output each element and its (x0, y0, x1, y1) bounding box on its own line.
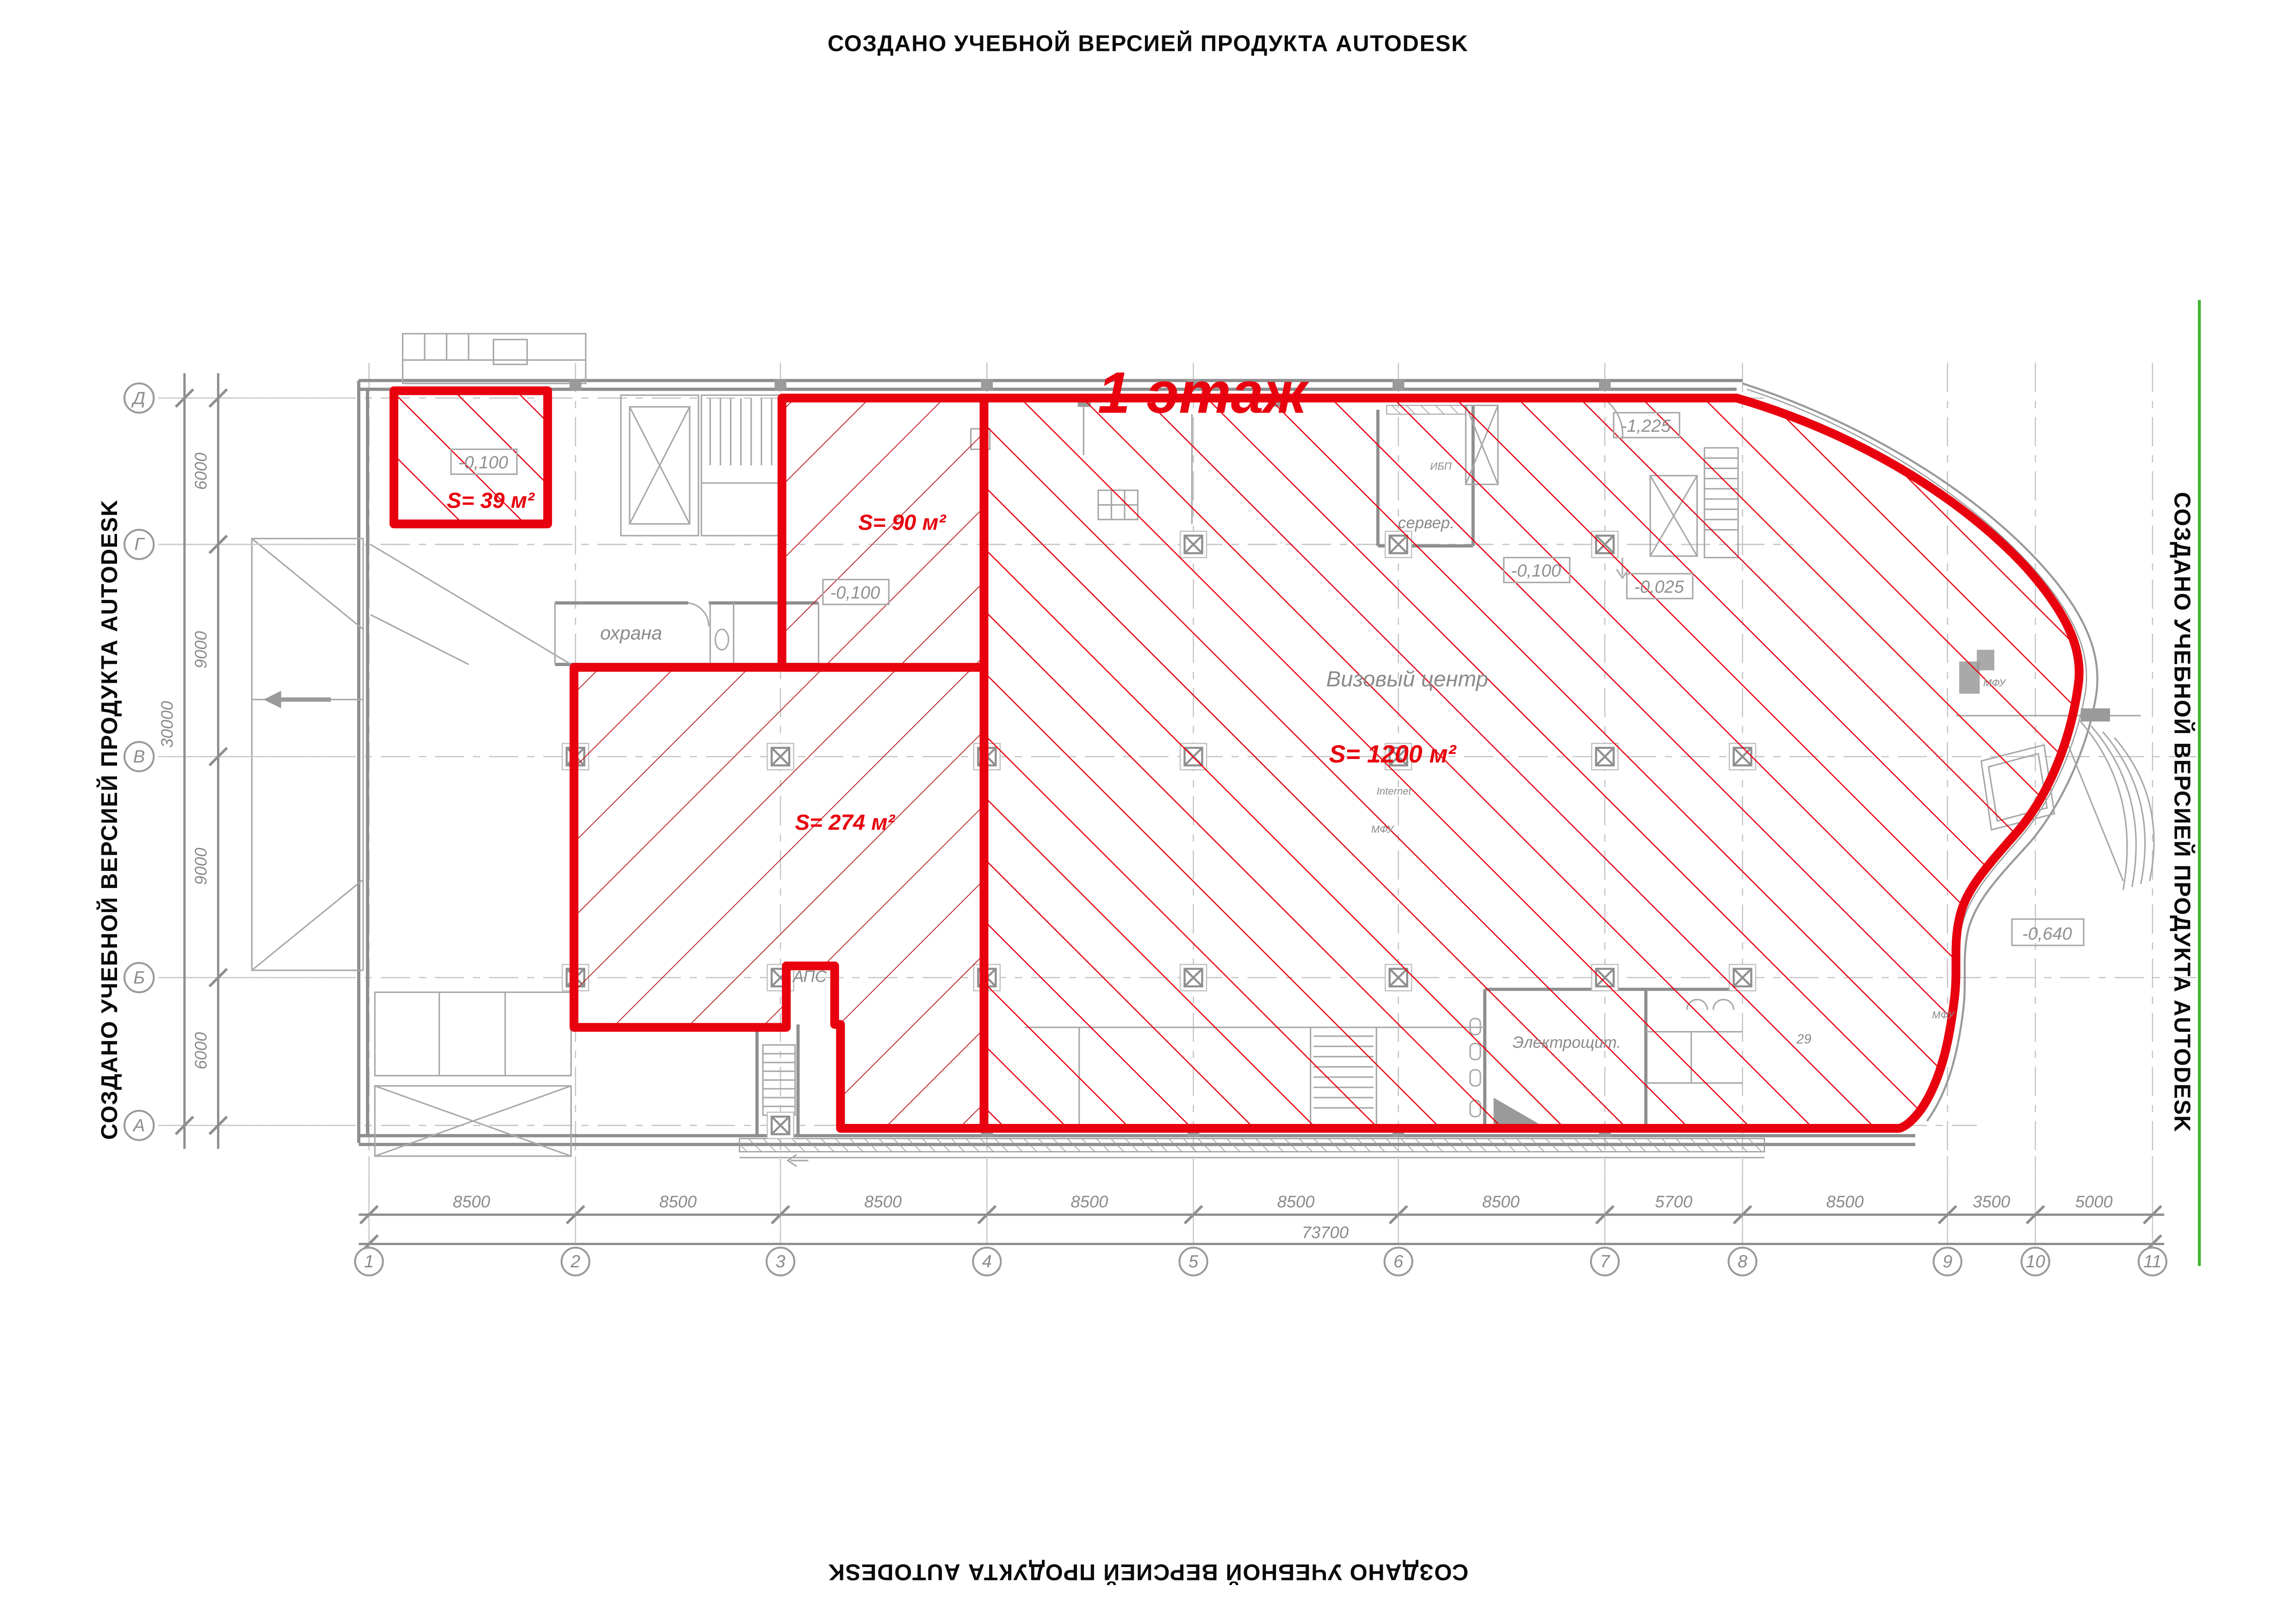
label-mfu-1: МФУ (1371, 823, 1394, 835)
dim-8500-2: 8500 (659, 1192, 697, 1211)
dim-6000-bottom: 6000 (191, 1032, 210, 1069)
room-label-ibp: ИБП (1430, 461, 1452, 472)
room-label-electro: Электрощит. (1512, 1034, 1621, 1052)
axis-row-v: В (133, 747, 145, 767)
axis-col-3: 3 (775, 1252, 785, 1271)
zone-274 (574, 667, 984, 1129)
dim-8500-7: 8500 (1826, 1192, 1864, 1211)
watermark-top: СОЗДАНО УЧЕБНОЙ ВЕРСИЕЙ ПРОДУКТА AUTODES… (828, 30, 1468, 56)
red-zones (394, 391, 2079, 1129)
room-label-server: сервер. (1398, 514, 1454, 532)
axis-row-g: Г (134, 535, 145, 555)
page-title: 1 этаж (1098, 359, 1309, 425)
toilet-icon (715, 629, 728, 650)
dim-6000-top: 6000 (191, 452, 210, 490)
axis-col-2: 2 (570, 1252, 580, 1271)
dim-8500-6: 8500 (1482, 1192, 1520, 1211)
room-number-29: 29 (1796, 1032, 1812, 1047)
dim-8500-4: 8500 (1071, 1192, 1108, 1211)
dim-8500-1: 8500 (453, 1192, 490, 1211)
label-mfu-3: МФУ (1983, 677, 2006, 689)
label-mfu-2: МФУ (1932, 1009, 1955, 1021)
ramp-arrow-icon (788, 1154, 808, 1166)
axis-bubbles-left: Д Г В Б А (124, 383, 154, 1140)
entry-arrow-head-icon (264, 691, 281, 708)
dim-5000: 5000 (2075, 1192, 2113, 1211)
dim-total-30000: 30000 (157, 701, 176, 748)
dim-5700: 5700 (1655, 1192, 1692, 1211)
porch-strip (739, 1139, 1764, 1158)
area-label-274: S= 274 м² (795, 810, 895, 835)
stair-top-left (701, 395, 779, 536)
axis-row-d: Д (131, 389, 145, 408)
stair-block-top-left (402, 333, 586, 383)
elevator-top-left (621, 395, 699, 536)
dimensions-bottom: 8500 8500 8500 8500 8500 8500 5700 8500 … (359, 1156, 2164, 1271)
dimensions-left: 6000 9000 9000 6000 30000 (157, 373, 351, 1149)
axis-col-6: 6 (1393, 1252, 1404, 1271)
floor-plan-sheet: 8500 8500 8500 8500 8500 8500 5700 8500 … (0, 0, 2296, 1623)
elevation-stair: -0,025 (1634, 577, 1684, 597)
entry-canopy-left (252, 538, 571, 970)
room-label-aps: АПС (792, 968, 827, 986)
elevation-shaft: -1,225 (1621, 416, 1671, 436)
zone-1200 (984, 398, 2079, 1129)
elevation-zone39: -0,100 (458, 453, 508, 473)
axis-col-9: 9 (1943, 1252, 1952, 1271)
axis-col-5: 5 (1188, 1252, 1199, 1271)
axis-row-a: А (132, 1116, 145, 1135)
axis-col-7: 7 (1600, 1252, 1610, 1271)
axis-col-10: 10 (2025, 1252, 2045, 1271)
cad-drawing: 8500 8500 8500 8500 8500 8500 5700 8500 … (0, 0, 2296, 1623)
room-label-visa-center: Визовый центр (1326, 667, 1488, 691)
room-label-okhrana: охрана (600, 623, 662, 644)
axis-col-8: 8 (1738, 1252, 1747, 1271)
axis-col-1: 1 (364, 1252, 374, 1271)
area-label-90: S= 90 м² (858, 510, 947, 535)
dim-8500-5: 8500 (1277, 1192, 1315, 1211)
elevation-core: -0,100 (1511, 562, 1561, 581)
dim-9000-lower: 9000 (191, 848, 210, 885)
elevation-gallery: -0,640 (2022, 924, 2072, 944)
area-label-1200: S= 1200 м² (1329, 741, 1457, 768)
elevation-zone90: -0,100 (830, 583, 880, 603)
axis-row-b: Б (133, 968, 145, 987)
watermark-left: СОЗДАНО УЧЕБНОЙ ВЕРСИЕЙ ПРОДУКТА AUTODES… (96, 499, 122, 1140)
dim-9000-upper: 9000 (191, 631, 210, 668)
watermark-bottom: СОЗДАНО УЧЕБНОЙ ВЕРСИЕЙ ПРОДУКТА AUTODES… (828, 1559, 1468, 1586)
dim-3500: 3500 (1973, 1192, 2010, 1211)
dim-8500-3: 8500 (864, 1192, 902, 1211)
dim-total-73700: 73700 (1302, 1223, 1349, 1242)
axis-col-4: 4 (982, 1252, 992, 1271)
watermark-right: СОЗДАНО УЧЕБНОЙ ВЕРСИЕЙ ПРОДУКТА AUTODES… (2169, 492, 2196, 1133)
area-label-39: S= 39 м² (447, 488, 535, 513)
axis-col-11: 11 (2143, 1252, 2161, 1271)
axis-bubbles-bottom: 1 2 3 4 5 6 7 8 9 10 11 (355, 1247, 2166, 1275)
label-internet: Internet (1377, 785, 1412, 797)
